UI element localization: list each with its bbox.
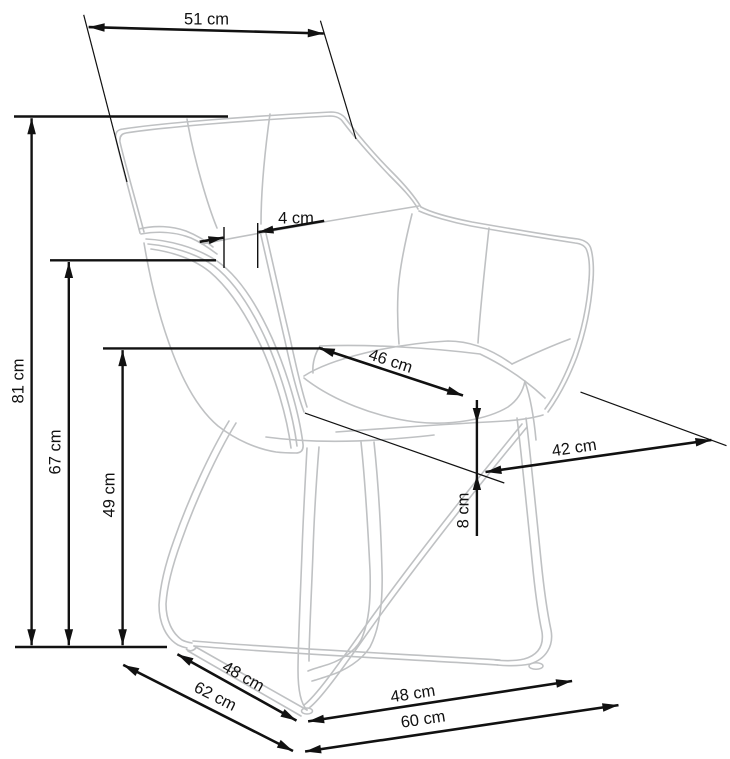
svg-text:4 cm: 4 cm	[278, 209, 314, 227]
svg-text:8 cm: 8 cm	[455, 493, 473, 529]
svg-text:51 cm: 51 cm	[184, 11, 229, 29]
svg-text:49 cm: 49 cm	[100, 473, 118, 518]
svg-text:67 cm: 67 cm	[47, 430, 65, 475]
svg-text:81 cm: 81 cm	[10, 359, 28, 404]
